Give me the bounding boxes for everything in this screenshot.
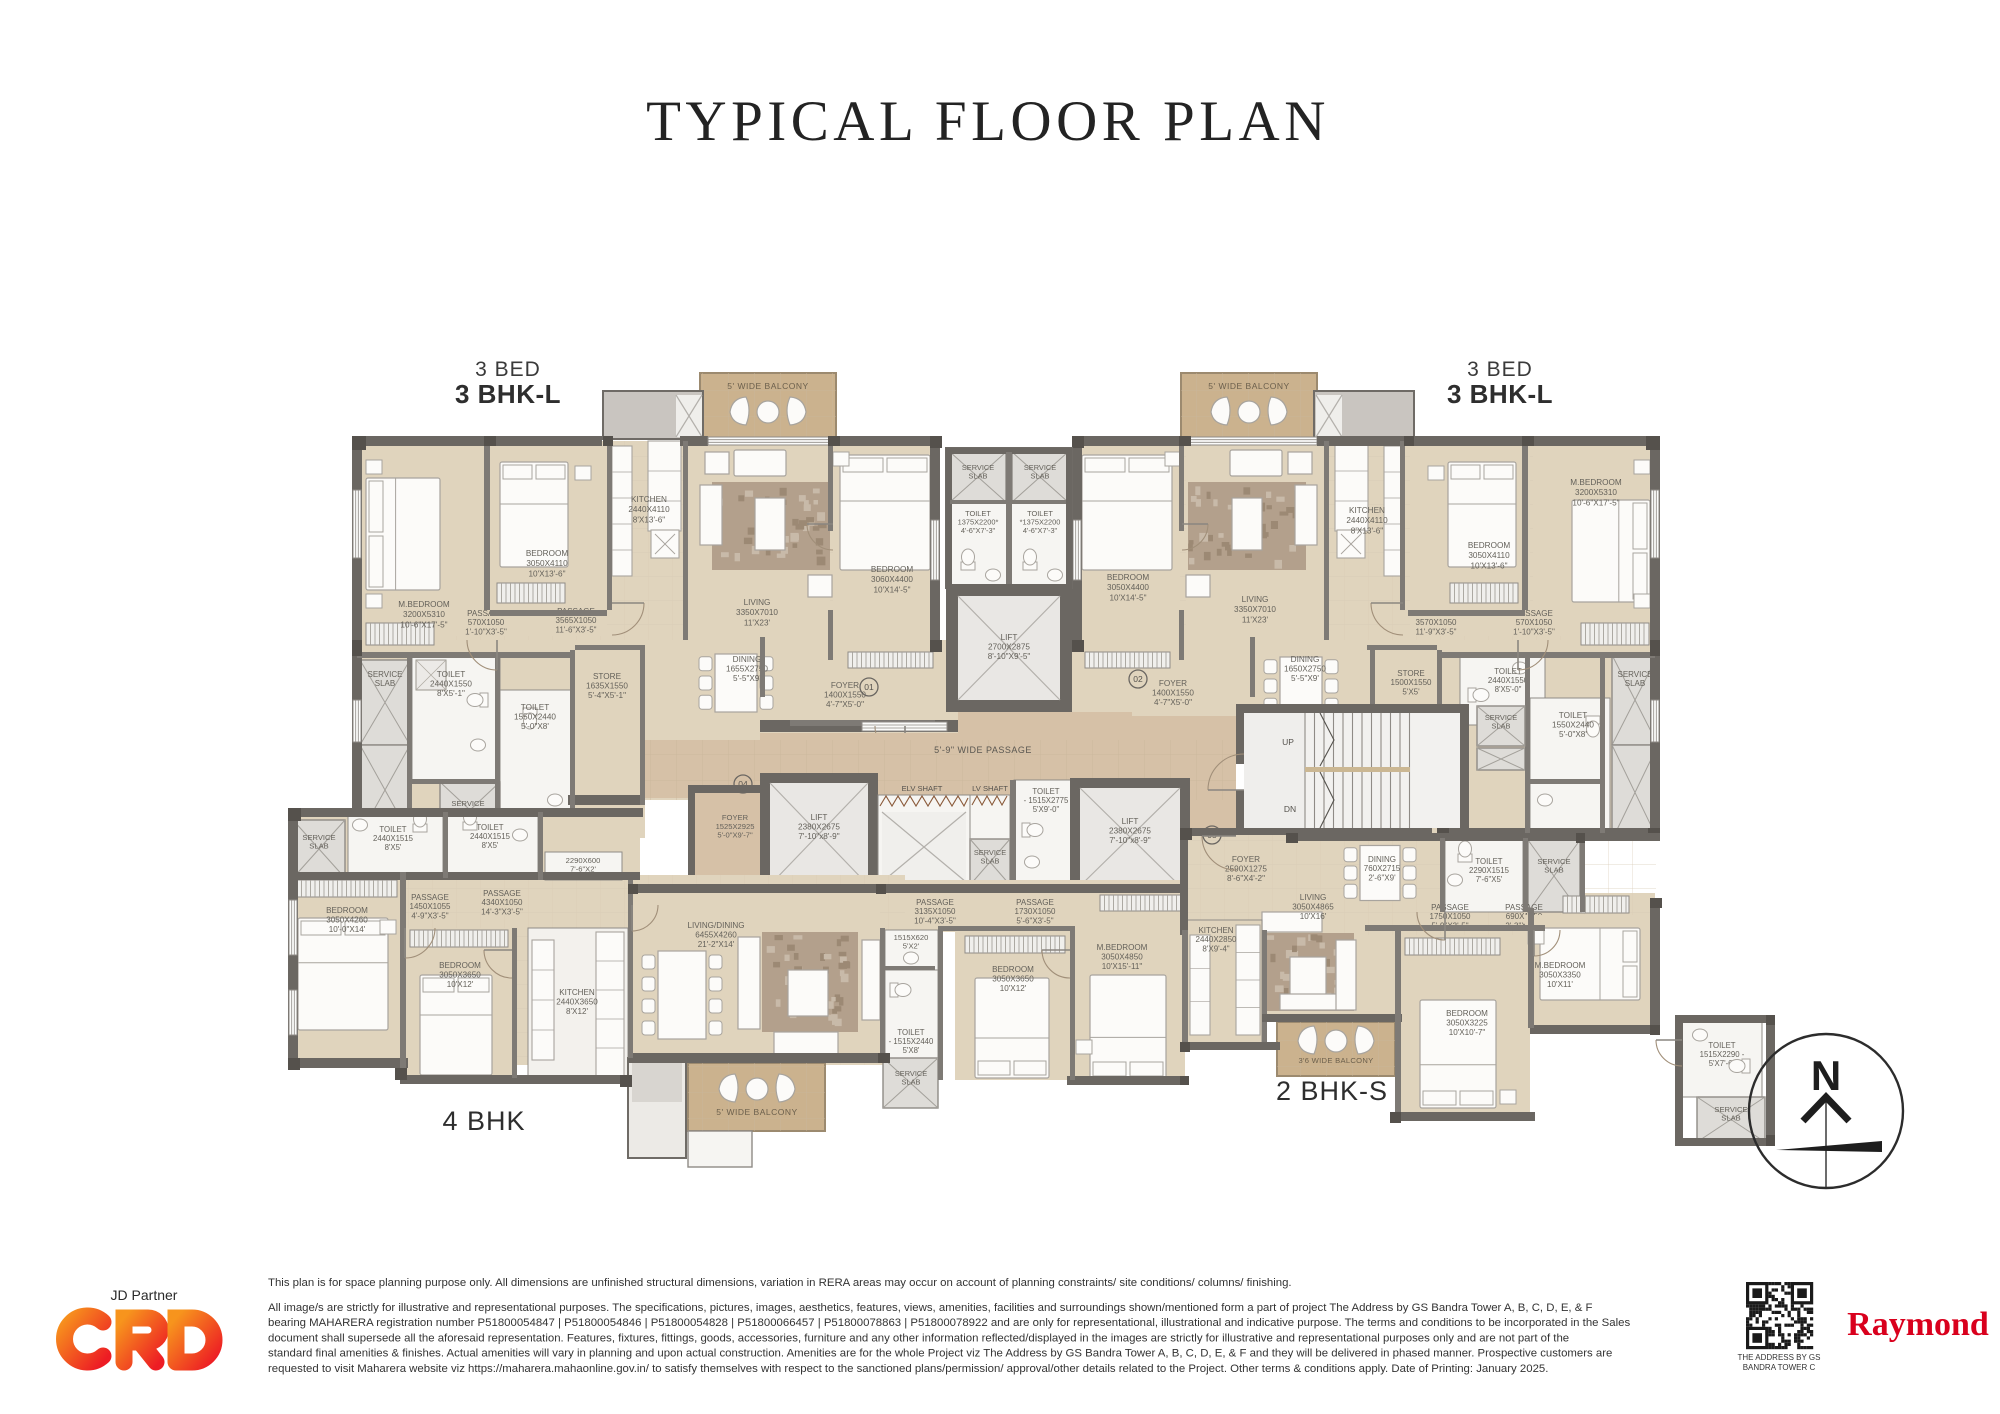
svg-text:TOILET: TOILET — [1559, 711, 1588, 720]
svg-text:TOILET: TOILET — [437, 670, 466, 679]
svg-text:11'-9"X3'-5": 11'-9"X3'-5" — [1415, 627, 1456, 636]
svg-text:FOYER: FOYER — [831, 681, 859, 690]
svg-text:1750X1050: 1750X1050 — [1430, 912, 1471, 921]
svg-text:2290X1515: 2290X1515 — [1469, 866, 1510, 875]
svg-text:TOILET: TOILET — [1475, 857, 1502, 866]
svg-text:3565X1050: 3565X1050 — [556, 616, 597, 625]
svg-text:5'-4"X5'-1": 5'-4"X5'-1" — [588, 691, 626, 700]
svg-text:PASSAGE: PASSAGE — [916, 898, 954, 907]
svg-text:DINING: DINING — [733, 655, 762, 664]
svg-text:5'-0"X8': 5'-0"X8' — [521, 722, 549, 731]
svg-text:3200X5310: 3200X5310 — [403, 610, 445, 619]
svg-text:JD Partner: JD Partner — [111, 1287, 178, 1303]
svg-text:570X1050: 570X1050 — [1516, 618, 1553, 627]
svg-text:THE ADDRESS BY GS: THE ADDRESS BY GS — [1738, 1353, 1821, 1362]
svg-text:8'X13'-6": 8'X13'-6" — [1351, 526, 1384, 535]
svg-text:10'X13'-6": 10'X13'-6" — [1471, 561, 1508, 570]
svg-text:1550X2440: 1550X2440 — [1552, 721, 1594, 730]
svg-text:All image/s are strictly for i: All image/s are strictly for illustrativ… — [268, 1302, 1593, 1314]
svg-text:10'-6"X17'-5": 10'-6"X17'-5" — [1572, 498, 1619, 507]
svg-text:requested to visit Maharera we: requested to visit Maharera website viz … — [268, 1363, 1548, 1375]
svg-text:10'-6"X17'-5": 10'-6"X17'-5" — [400, 620, 447, 629]
svg-text:UP: UP — [1282, 737, 1294, 747]
svg-text:LIVING: LIVING — [1242, 595, 1269, 604]
svg-text:4'-7"X5'-0": 4'-7"X5'-0" — [1154, 698, 1192, 707]
svg-text:SLAB: SLAB — [1031, 471, 1050, 480]
svg-text:5' WIDE BALCONY: 5' WIDE BALCONY — [727, 381, 808, 391]
svg-text:3570X1050: 3570X1050 — [1416, 618, 1457, 627]
svg-text:DINING: DINING — [1291, 655, 1320, 664]
svg-text:8'X9'-4": 8'X9'-4" — [1202, 944, 1229, 953]
svg-text:- 1515X2775: - 1515X2775 — [1024, 796, 1069, 805]
svg-text:2440X2850: 2440X2850 — [1196, 935, 1237, 944]
svg-text:PASSAGE: PASSAGE — [411, 893, 449, 902]
svg-text:2380X2675: 2380X2675 — [1109, 827, 1151, 836]
svg-text:4340X1050: 4340X1050 — [482, 898, 523, 907]
svg-text:SLAB: SLAB — [981, 856, 1000, 865]
svg-text:LIVING: LIVING — [1300, 893, 1327, 902]
svg-text:7'-10"x8'-9": 7'-10"x8'-9" — [798, 832, 839, 841]
svg-text:3350X7010: 3350X7010 — [1234, 605, 1276, 614]
svg-text:11'X23': 11'X23' — [744, 618, 771, 627]
svg-text:TOILET: TOILET — [379, 825, 406, 834]
svg-text:1550X2440: 1550X2440 — [514, 713, 556, 722]
svg-text:10'-0"X14': 10'-0"X14' — [329, 925, 366, 934]
svg-text:BEDROOM: BEDROOM — [1468, 541, 1510, 550]
svg-text:TOILET: TOILET — [476, 823, 503, 832]
svg-text:11'-6"X3'-5": 11'-6"X3'-5" — [555, 625, 596, 634]
svg-text:BEDROOM: BEDROOM — [439, 961, 481, 970]
svg-text:5'-6"X3'-5": 5'-6"X3'-5" — [1016, 916, 1053, 925]
svg-text:5'X8': 5'X8' — [903, 1046, 920, 1055]
svg-text:SLAB: SLAB — [1721, 1114, 1740, 1123]
svg-text:SLAB: SLAB — [902, 1077, 921, 1086]
svg-text:3050X4260: 3050X4260 — [326, 915, 368, 924]
svg-text:7'-10"x8'-9": 7'-10"x8'-9" — [1109, 836, 1150, 845]
svg-text:1650X2750: 1650X2750 — [1284, 665, 1326, 674]
svg-text:TOILET: TOILET — [897, 1028, 924, 1037]
svg-text:1400X1550: 1400X1550 — [824, 691, 866, 700]
svg-text:5'X5': 5'X5' — [1402, 687, 1420, 696]
svg-text:STORE: STORE — [593, 672, 622, 681]
svg-text:BEDROOM: BEDROOM — [1107, 573, 1149, 582]
svg-text:3 BED: 3 BED — [1467, 358, 1533, 381]
svg-text:LIVING/DINING: LIVING/DINING — [687, 921, 744, 930]
svg-text:3050X3350: 3050X3350 — [1539, 970, 1581, 979]
svg-text:10'X11': 10'X11' — [1547, 980, 1573, 989]
svg-text:10'X12': 10'X12' — [1000, 984, 1027, 993]
svg-text:8'X5': 8'X5' — [385, 843, 402, 852]
svg-text:4'-6"X7'-3": 4'-6"X7'-3" — [961, 526, 996, 535]
svg-text:1515X2290 -: 1515X2290 - — [1700, 1050, 1745, 1059]
svg-text:8'-6"X4'-2": 8'-6"X4'-2" — [1227, 874, 1265, 883]
svg-text:PASSAGE: PASSAGE — [1016, 898, 1054, 907]
svg-text:4'-7"X5'-0": 4'-7"X5'-0" — [826, 700, 864, 709]
svg-text:2440X1515: 2440X1515 — [373, 834, 414, 843]
svg-text:LIFT: LIFT — [1001, 633, 1018, 642]
svg-text:8'X5'-0": 8'X5'-0" — [1495, 685, 1522, 694]
svg-text:KITCHEN: KITCHEN — [631, 495, 667, 504]
svg-text:TOILET: TOILET — [1708, 1041, 1735, 1050]
svg-text:SLAB: SLAB — [1544, 866, 1563, 875]
svg-text:LV SHAFT: LV SHAFT — [972, 784, 1008, 793]
svg-text:KITCHEN: KITCHEN — [1198, 926, 1233, 935]
svg-text:1730X1050: 1730X1050 — [1015, 907, 1056, 916]
svg-text:01: 01 — [864, 682, 874, 692]
svg-text:FOYER: FOYER — [722, 813, 749, 822]
svg-text:8'-10"X9'-5": 8'-10"X9'-5" — [988, 652, 1031, 661]
svg-text:3050X4110: 3050X4110 — [526, 559, 568, 568]
svg-text:BANDRA TOWER C: BANDRA TOWER C — [1743, 1363, 1816, 1372]
svg-text:2440X4110: 2440X4110 — [1346, 516, 1388, 525]
svg-text:3200X5310: 3200X5310 — [1575, 488, 1617, 497]
svg-text:2440X4110: 2440X4110 — [628, 505, 670, 514]
svg-text:10'-4"X3'-5": 10'-4"X3'-5" — [914, 916, 956, 925]
svg-text:FOYER: FOYER — [1232, 855, 1260, 864]
svg-text:2380X2675: 2380X2675 — [798, 823, 840, 832]
svg-text:BEDROOM: BEDROOM — [1446, 1009, 1488, 1018]
svg-text:ELV SHAFT: ELV SHAFT — [902, 784, 943, 793]
svg-text:BEDROOM: BEDROOM — [871, 565, 913, 574]
svg-text:5'-0"X8': 5'-0"X8' — [1559, 730, 1587, 739]
svg-text:14'-3"X3'-5": 14'-3"X3'-5" — [481, 907, 523, 916]
svg-text:8'X13'-6": 8'X13'-6" — [633, 515, 666, 524]
svg-text:6455X4260: 6455X4260 — [695, 930, 737, 939]
svg-text:4'-6"X7'-3": 4'-6"X7'-3" — [1023, 526, 1058, 535]
svg-text:10'X15'-11": 10'X15'-11" — [1102, 962, 1143, 971]
svg-text:2590X1275: 2590X1275 — [1225, 865, 1267, 874]
svg-text:TYPICAL FLOOR PLAN: TYPICAL FLOOR PLAN — [646, 90, 1330, 153]
svg-text:10'X14'-5": 10'X14'-5" — [874, 585, 911, 594]
svg-text:SLAB: SLAB — [1492, 721, 1511, 730]
svg-text:SLAB: SLAB — [309, 842, 328, 851]
svg-text:STORE: STORE — [1397, 669, 1424, 678]
svg-text:TOILET: TOILET — [521, 703, 550, 712]
svg-text:10'X16': 10'X16' — [1300, 912, 1327, 921]
svg-text:10'X12': 10'X12' — [447, 980, 474, 989]
svg-text:3060X4400: 3060X4400 — [871, 575, 913, 584]
svg-text:1525X2925: 1525X2925 — [716, 822, 755, 831]
svg-text:5'-0"X9'-7": 5'-0"X9'-7" — [717, 831, 753, 840]
svg-text:TOILET: TOILET — [1032, 787, 1059, 796]
svg-text:1'-10"X3'-5": 1'-10"X3'-5" — [1513, 627, 1555, 636]
svg-text:3050X4865: 3050X4865 — [1292, 902, 1334, 911]
svg-text:5' WIDE BALCONY: 5' WIDE BALCONY — [716, 1107, 797, 1117]
svg-text:1400X1550: 1400X1550 — [1152, 689, 1194, 698]
svg-text:8'X12': 8'X12' — [566, 1007, 588, 1016]
svg-text:BEDROOM: BEDROOM — [992, 965, 1034, 974]
svg-text:5'-5"X9': 5'-5"X9' — [733, 674, 761, 683]
svg-text:standard final amenities & fin: standard final amenities & finishes. Act… — [268, 1348, 1612, 1360]
svg-text:760X2715: 760X2715 — [1364, 864, 1401, 873]
svg-text:8'X5': 8'X5' — [482, 841, 499, 850]
svg-text:LIFT: LIFT — [1122, 817, 1139, 826]
svg-text:Raymond: Raymond — [1847, 1306, 1989, 1343]
svg-text:5'-9" WIDE PASSAGE: 5'-9" WIDE PASSAGE — [934, 745, 1032, 755]
svg-text:DINING: DINING — [1368, 855, 1396, 864]
svg-text:3050X3650: 3050X3650 — [992, 974, 1034, 983]
svg-text:KITCHEN: KITCHEN — [559, 988, 595, 997]
svg-text:02: 02 — [1133, 674, 1143, 684]
svg-text:3 BHK-L: 3 BHK-L — [1447, 379, 1553, 409]
svg-text:LIFT: LIFT — [811, 813, 828, 822]
svg-text:bearing MAHARERA registration: bearing MAHARERA registration number P51… — [268, 1317, 1630, 1329]
svg-text:SLAB: SLAB — [375, 679, 395, 688]
svg-text:DN: DN — [1284, 804, 1296, 814]
svg-text:10'X13'-6": 10'X13'-6" — [529, 569, 566, 578]
svg-text:M.BEDROOM: M.BEDROOM — [1570, 478, 1622, 487]
svg-text:2700X2875: 2700X2875 — [988, 643, 1030, 652]
svg-text:21'-2"X14': 21'-2"X14' — [698, 940, 735, 949]
svg-text:2'-6"X9': 2'-6"X9' — [1368, 873, 1396, 882]
svg-text:M.BEDROOM: M.BEDROOM — [1535, 961, 1586, 970]
svg-text:SERVICE: SERVICE — [1618, 670, 1653, 679]
svg-text:SERVICE: SERVICE — [368, 670, 403, 679]
svg-text:3135X1050: 3135X1050 — [915, 907, 956, 916]
svg-text:3350X7010: 3350X7010 — [736, 608, 778, 617]
svg-text:1'-10"X3'-5": 1'-10"X3'-5" — [465, 627, 507, 636]
svg-text:3050X3225: 3050X3225 — [1446, 1018, 1488, 1027]
svg-text:4 BHK: 4 BHK — [442, 1106, 525, 1136]
svg-text:2440X1515: 2440X1515 — [470, 832, 511, 841]
svg-text:FOYER: FOYER — [1159, 679, 1187, 688]
svg-text:1500X1550: 1500X1550 — [1391, 678, 1432, 687]
svg-text:PASSAGE: PASSAGE — [1431, 903, 1469, 912]
svg-text:SLAB: SLAB — [1625, 679, 1645, 688]
svg-text:3050X4110: 3050X4110 — [1468, 551, 1510, 560]
svg-text:1450X1055: 1450X1055 — [410, 902, 451, 911]
svg-text:2440X3650: 2440X3650 — [556, 997, 598, 1006]
svg-text:3050X4400: 3050X4400 — [1107, 583, 1149, 592]
svg-text:2440X1550: 2440X1550 — [430, 680, 472, 689]
svg-text:5'X2': 5'X2' — [903, 942, 920, 951]
svg-text:SLAB: SLAB — [969, 471, 988, 480]
svg-text:3 BED: 3 BED — [475, 358, 541, 381]
svg-text:M.BEDROOM: M.BEDROOM — [1097, 943, 1148, 952]
svg-text:2 BHK-S: 2 BHK-S — [1276, 1076, 1388, 1106]
svg-text:4'-9"X3'-5": 4'-9"X3'-5" — [411, 911, 448, 920]
svg-text:5'X9'-0": 5'X9'-0" — [1033, 805, 1060, 814]
svg-text:M.BEDROOM: M.BEDROOM — [398, 600, 450, 609]
svg-text:1635X1550: 1635X1550 — [586, 682, 628, 691]
svg-text:LIVING: LIVING — [744, 598, 771, 607]
svg-text:570X1050: 570X1050 — [468, 618, 505, 627]
svg-text:3'6 WIDE BALCONY: 3'6 WIDE BALCONY — [1298, 1056, 1373, 1065]
svg-text:5'-5"X9': 5'-5"X9' — [1291, 674, 1319, 683]
svg-text:KITCHEN: KITCHEN — [1349, 506, 1385, 515]
svg-text:10'X10'-7": 10'X10'-7" — [1449, 1028, 1486, 1037]
svg-text:3050X3650: 3050X3650 — [439, 970, 481, 979]
svg-text:8'X5'-1": 8'X5'-1" — [437, 689, 465, 698]
svg-text:7'-6"X5': 7'-6"X5' — [1476, 875, 1503, 884]
svg-text:- 1515X2440: - 1515X2440 — [889, 1037, 934, 1046]
svg-text:11'X23': 11'X23' — [1242, 615, 1269, 624]
svg-text:2440X1550: 2440X1550 — [1488, 676, 1529, 685]
svg-text:document shall supersede all t: document shall supersede all the aforesa… — [268, 1332, 1569, 1344]
svg-text:This plan is for space plannin: This plan is for space planning purpose … — [268, 1277, 1292, 1289]
svg-text:10'X14'-5": 10'X14'-5" — [1110, 593, 1147, 602]
svg-text:PASSAGE: PASSAGE — [483, 889, 521, 898]
svg-text:3 BHK-L: 3 BHK-L — [455, 379, 561, 409]
svg-text:BEDROOM: BEDROOM — [326, 906, 368, 915]
svg-text:3050X4850: 3050X4850 — [1101, 952, 1143, 961]
svg-text:5' WIDE BALCONY: 5' WIDE BALCONY — [1208, 381, 1289, 391]
svg-text:BEDROOM: BEDROOM — [526, 549, 568, 558]
